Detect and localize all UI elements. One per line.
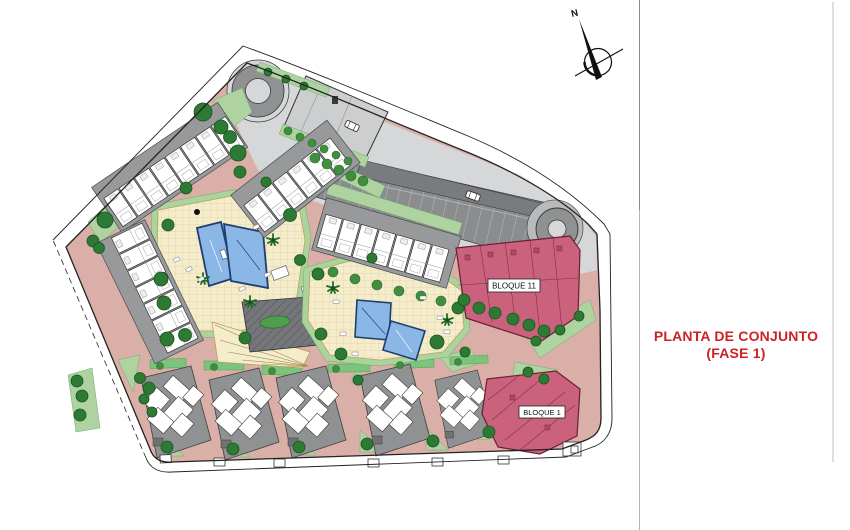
bloque-11-label-text: BLOQUE 11 — [492, 282, 536, 291]
bloque-11-label: BLOQUE 11 — [488, 279, 540, 292]
bloque-1-label-text: BLOQUE 1 — [523, 408, 561, 417]
compass-needle-icon — [579, 19, 602, 80]
drawing-sheet: BLOQUE 11 BLOQUE 1 N PLANTA DE CONJUNTO … — [0, 0, 850, 530]
north-compass: N — [570, 8, 623, 80]
page-title: PLANTA DE CONJUNTO (FASE 1) — [641, 328, 831, 362]
title-line-1: PLANTA DE CONJUNTO — [641, 328, 831, 345]
title-line-2: (FASE 1) — [641, 345, 831, 362]
sheet-dividers — [640, 0, 834, 530]
site-plan-svg: BLOQUE 11 BLOQUE 1 N — [0, 0, 850, 530]
compass-label: N — [570, 8, 579, 20]
bloque-1-label: BLOQUE 1 — [519, 406, 565, 418]
